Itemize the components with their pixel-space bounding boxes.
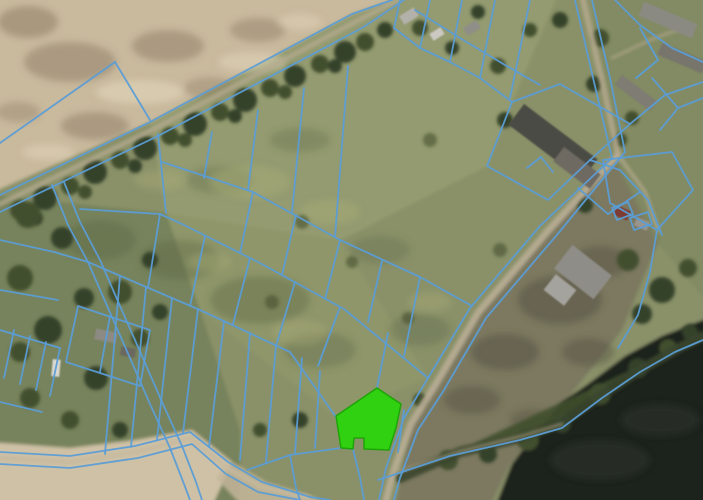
tree-cluster [178, 133, 192, 147]
tree-cluster [617, 249, 639, 271]
tree-cluster [152, 304, 168, 320]
tree-cluster [649, 277, 675, 303]
terrain-mottle [132, 30, 204, 62]
tree-cluster [51, 227, 73, 249]
tree-cluster [292, 412, 308, 428]
terrain-mottle [620, 404, 700, 436]
terrain-mottle [0, 6, 58, 38]
tree-cluster [74, 288, 94, 308]
terrain-mottle [471, 334, 539, 370]
tree-cluster [233, 88, 257, 112]
tree-cluster [328, 59, 342, 73]
tree-cluster [471, 5, 485, 19]
terrain-mottle [64, 220, 136, 260]
map-layers [0, 0, 703, 500]
tree-cluster [20, 388, 40, 408]
terrain-mottle [134, 170, 186, 190]
tree-cluster [112, 422, 128, 438]
tree-cluster [552, 12, 568, 28]
tree-cluster [142, 252, 158, 268]
tree-cluster [346, 256, 358, 268]
tree-cluster [78, 185, 92, 199]
terrain-mottle [550, 440, 650, 480]
tree-cluster [61, 411, 79, 429]
map-viewport[interactable] [0, 0, 703, 500]
tree-cluster [15, 202, 41, 228]
terrain-mottle [300, 200, 360, 224]
terrain-mottle [188, 253, 232, 271]
tree-cluster [356, 33, 374, 51]
tree-cluster [493, 243, 507, 257]
tree-cluster [311, 55, 329, 73]
terrain-mottle [562, 338, 614, 366]
terrain-mottle [24, 42, 116, 82]
aerial-map [0, 0, 703, 500]
tree-cluster [7, 265, 33, 291]
terrain-mottle [230, 18, 286, 42]
terrain-mottle [22, 144, 74, 160]
tree-cluster [679, 259, 697, 277]
tree-cluster [253, 423, 267, 437]
tree-cluster [128, 159, 142, 173]
terrain-mottle [278, 14, 322, 30]
tree-cluster [261, 79, 279, 97]
tree-cluster [61, 177, 79, 195]
tree-cluster [423, 133, 437, 147]
tree-cluster [34, 316, 62, 344]
terrain-mottle [444, 386, 500, 414]
tree-cluster [228, 109, 242, 123]
tree-cluster [278, 85, 292, 99]
terrain-mottle [96, 80, 184, 104]
terrain-mottle [390, 314, 450, 346]
terrain-mottle [61, 112, 129, 140]
terrain-mottle [350, 236, 410, 264]
tree-cluster [377, 22, 393, 38]
tree-cluster [265, 295, 279, 309]
